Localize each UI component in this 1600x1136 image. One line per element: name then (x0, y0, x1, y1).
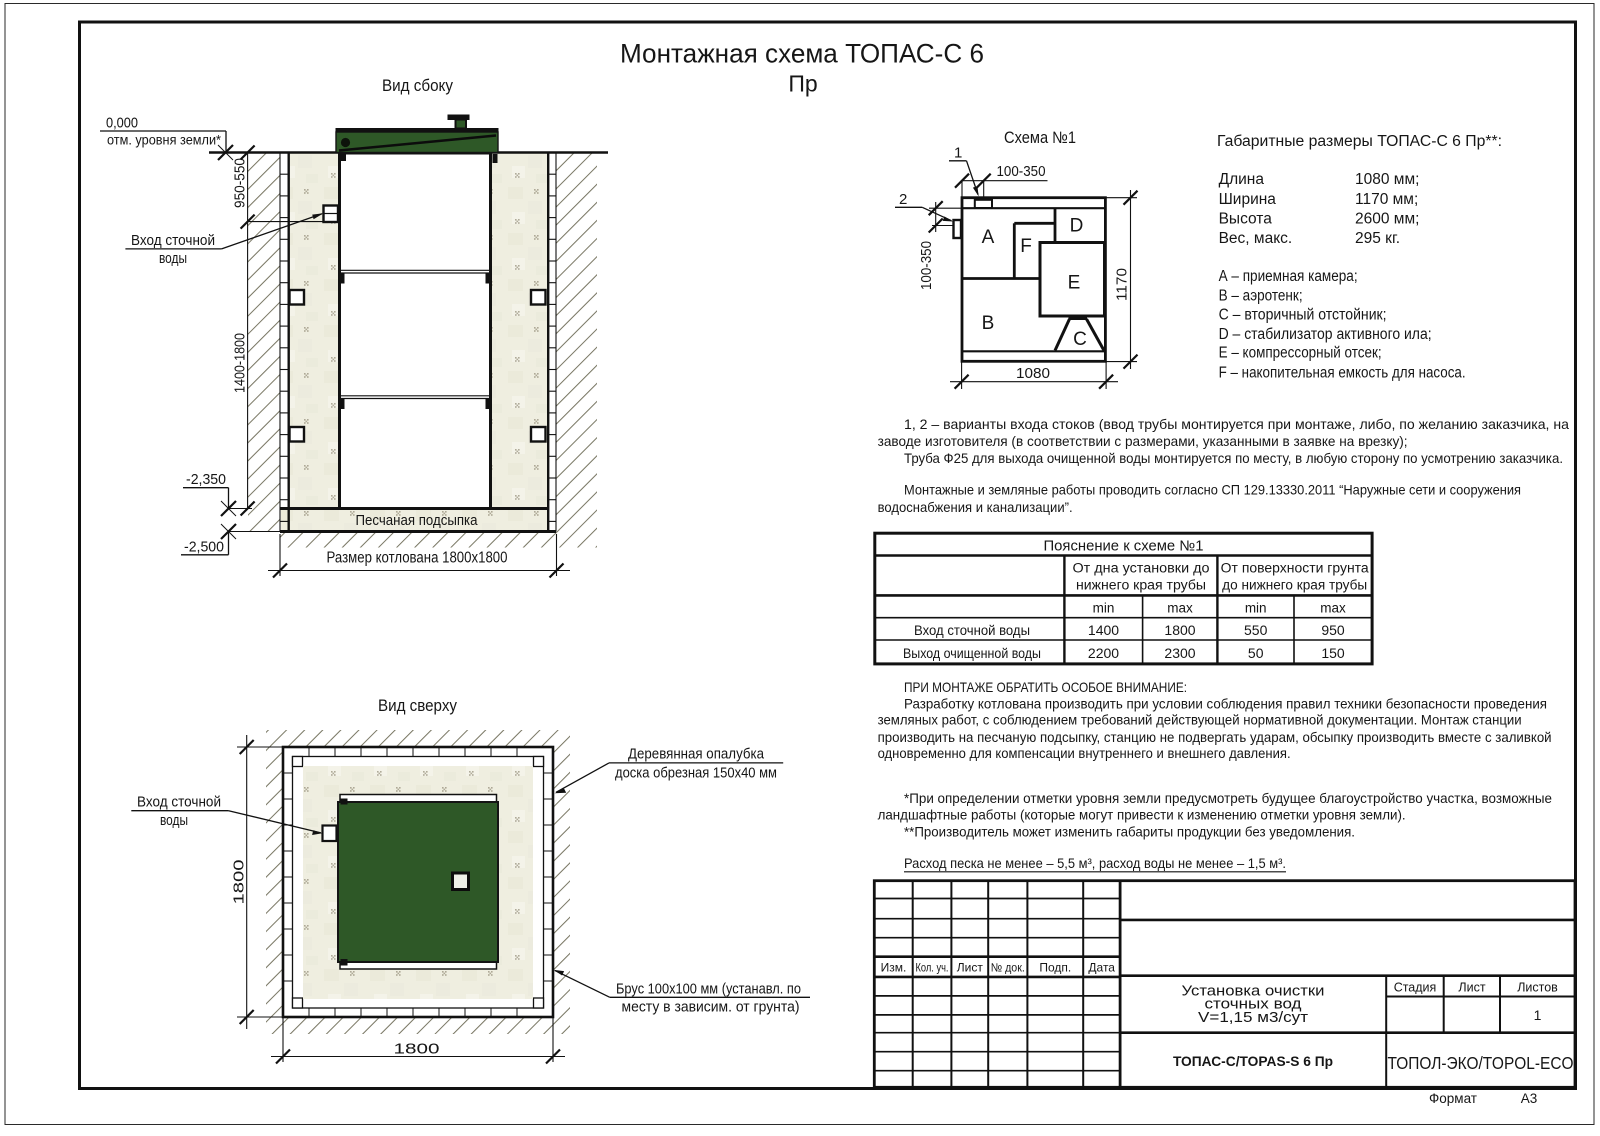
svg-text:-2,500: -2,500 (184, 539, 224, 556)
svg-text:max: max (1320, 601, 1346, 616)
svg-text:2200: 2200 (1088, 645, 1119, 661)
svg-text:Вход сточной: Вход сточной (137, 795, 221, 811)
svg-text:Вход сточной воды: Вход сточной воды (914, 622, 1030, 638)
svg-text:1: 1 (954, 145, 962, 162)
svg-text:F – накопительная емкость для: F – накопительная емкость для насоса. (1219, 365, 1466, 382)
svg-text:Вход сточной: Вход сточной (131, 233, 215, 249)
svg-text:min: min (1245, 601, 1267, 616)
svg-text:месту в зависим. от грунта): месту в зависим. от грунта) (622, 1000, 800, 1016)
svg-text:Расход песка не менее – 5,5 м³: Расход песка не менее – 5,5 м³, расход в… (904, 855, 1286, 871)
svg-text:1400-1800: 1400-1800 (232, 333, 249, 393)
svg-text:50: 50 (1248, 645, 1264, 661)
svg-text:1: 1 (1534, 1007, 1542, 1023)
svg-text:max: max (1167, 601, 1193, 616)
svg-text:воды: воды (160, 813, 188, 829)
svg-text:От поверхности грунта: От поверхности грунта (1221, 561, 1370, 576)
svg-text:Высота: Высота (1219, 210, 1273, 227)
svg-text:Ширина: Ширина (1219, 191, 1277, 208)
svg-text:Дата: Дата (1088, 961, 1115, 975)
svg-text:Вес, макс.: Вес, макс. (1219, 230, 1293, 247)
svg-text:№ док.: № док. (991, 961, 1025, 975)
svg-text:Листов: Листов (1517, 981, 1558, 995)
svg-text:min: min (1093, 601, 1115, 616)
svg-text:Схема №1: Схема №1 (1004, 129, 1076, 147)
svg-text:C: C (1073, 329, 1087, 350)
svg-text:Выход очищенной воды: Выход очищенной воды (903, 645, 1041, 661)
svg-text:1400: 1400 (1088, 622, 1119, 638)
svg-text:земляных работ, с соблюдением: земляных работ, с соблюдением требований… (878, 712, 1522, 728)
svg-text:V=1,15 м3/сут: V=1,15 м3/сут (1198, 1010, 1308, 1026)
svg-text:F: F (1020, 236, 1032, 257)
svg-text:1, 2 – варианты входа стоков: 1, 2 – варианты входа стоков (ввод трубы… (904, 416, 1569, 432)
svg-text:2300: 2300 (1164, 645, 1195, 661)
svg-text:Е – компрессорный отсек;: Е – компрессорный отсек; (1219, 345, 1382, 362)
svg-text:A: A (982, 227, 995, 248)
svg-text:отм. уровня земли*: отм. уровня земли* (107, 133, 222, 148)
svg-text:D: D (1070, 216, 1084, 237)
svg-text:2600 мм;: 2600 мм; (1355, 210, 1419, 227)
svg-text:доска обрезная 150х40 мм: доска обрезная 150х40 мм (615, 766, 777, 782)
svg-text:950: 950 (1321, 622, 1345, 638)
svg-text:150: 150 (1321, 645, 1345, 661)
svg-text:2: 2 (899, 191, 907, 208)
svg-text:водоснабжения и канализации”.: водоснабжения и канализации”. (878, 499, 1073, 515)
svg-text:От дна установки до: От дна установки до (1073, 561, 1210, 576)
svg-text:1170: 1170 (1115, 268, 1131, 301)
svg-text:1800: 1800 (1164, 622, 1195, 638)
svg-text:Разработку котлована производи: Разработку котлована производить при усл… (904, 695, 1547, 711)
svg-text:Вид сбоку: Вид сбоку (382, 76, 453, 95)
svg-text:-2,350: -2,350 (186, 471, 226, 488)
svg-text:**Производитель может изменить: **Производитель может изменить габариты … (904, 824, 1355, 840)
svg-text:1080: 1080 (1016, 366, 1050, 382)
svg-text:E: E (1068, 273, 1081, 294)
svg-text:А – приемная камера;: А – приемная камера; (1219, 268, 1358, 285)
svg-text:Монтажные и земляные работы пр: Монтажные и земляные работы проводить со… (904, 482, 1521, 498)
svg-text:Монтажная схема ТОПАС-С 6: Монтажная схема ТОПАС-С 6 (620, 39, 984, 69)
svg-text:Труба Ф25 для выхода очищенной: Труба Ф25 для выхода очищенной воды монт… (904, 450, 1563, 466)
svg-text:Пояснение к схеме №1: Пояснение к схеме №1 (1044, 539, 1204, 555)
svg-text:В – аэротенк;: В – аэротенк; (1219, 288, 1303, 305)
svg-text:заводе изготовителя (в соответ: заводе изготовителя (в соответствии с ра… (878, 433, 1408, 449)
svg-text:Брус 100х100 мм (устанавл. по: Брус 100х100 мм (устанавл. по (616, 982, 801, 998)
svg-text:Кол. уч.: Кол. уч. (916, 961, 949, 975)
svg-text:Подп.: Подп. (1039, 961, 1071, 975)
svg-text:Стадия: Стадия (1394, 981, 1437, 995)
svg-text:100-350: 100-350 (997, 164, 1046, 180)
svg-text:295 кг.: 295 кг. (1355, 230, 1400, 247)
svg-text:Формат: Формат (1429, 1091, 1477, 1106)
svg-text:Песчаная подсыпка: Песчаная подсыпка (356, 513, 479, 529)
svg-text:ТОПОЛ-ЭКО/TOPOL-ECO: ТОПОЛ-ЭКО/TOPOL-ECO (1388, 1053, 1574, 1073)
svg-text:950-550: 950-550 (232, 158, 249, 208)
svg-text:до нижнего края трубы: до нижнего края трубы (1222, 578, 1367, 593)
svg-text:А3: А3 (1521, 1091, 1538, 1106)
svg-text:С – вторичный отстойник;: С – вторичный отстойник; (1219, 306, 1387, 323)
svg-text:Пр: Пр (788, 71, 817, 97)
svg-text:1800: 1800 (394, 1041, 440, 1058)
svg-text:ТОПАС-С/TOPAS-S 6 Пр: ТОПАС-С/TOPAS-S 6 Пр (1173, 1054, 1333, 1069)
svg-text:Лист: Лист (957, 961, 984, 975)
svg-text:1080 мм;: 1080 мм; (1355, 171, 1419, 188)
svg-text:Вид сверху: Вид сверху (378, 696, 457, 715)
svg-text:Длина: Длина (1219, 171, 1265, 188)
svg-text:*При определении отметки уровн: *При определении отметки уровня земли пр… (904, 790, 1552, 806)
svg-text:нижнего края трубы: нижнего края трубы (1076, 578, 1206, 593)
svg-text:0,000: 0,000 (106, 115, 138, 132)
svg-text:воды: воды (159, 251, 187, 267)
svg-text:100-350: 100-350 (919, 241, 935, 290)
svg-text:Деревянная опалубка: Деревянная опалубка (628, 747, 765, 763)
svg-text:550: 550 (1244, 622, 1268, 638)
svg-text:Лист: Лист (1458, 981, 1485, 995)
svg-text:B: B (982, 313, 995, 334)
svg-text:производить на песчаную подсып: производить на песчаную подсыпку, станци… (878, 729, 1552, 745)
svg-text:Габаритные размеры ТОПАС-С 6 П: Габаритные размеры ТОПАС-С 6 Пр**: (1217, 133, 1502, 150)
svg-text:одновременно для компенсации в: одновременно для компенсации внутреннего… (878, 745, 1291, 761)
svg-text:D – стабилизатор активного ила: D – стабилизатор активного ила; (1219, 326, 1432, 343)
svg-text:Изм.: Изм. (881, 961, 907, 975)
svg-text:ландшафтные работы (которые мо: ландшафтные работы (которые могут привес… (878, 806, 1406, 822)
svg-text:ПРИ МОНТАЖЕ ОБРАТИТЬ ОСОБОЕ ВН: ПРИ МОНТАЖЕ ОБРАТИТЬ ОСОБОЕ ВНИМАНИЕ: (904, 679, 1187, 695)
svg-text:1170 мм;: 1170 мм; (1355, 191, 1418, 208)
svg-text:Размер котлована 1800х1800: Размер котлована 1800х1800 (327, 550, 508, 567)
svg-text:1800: 1800 (231, 860, 248, 905)
